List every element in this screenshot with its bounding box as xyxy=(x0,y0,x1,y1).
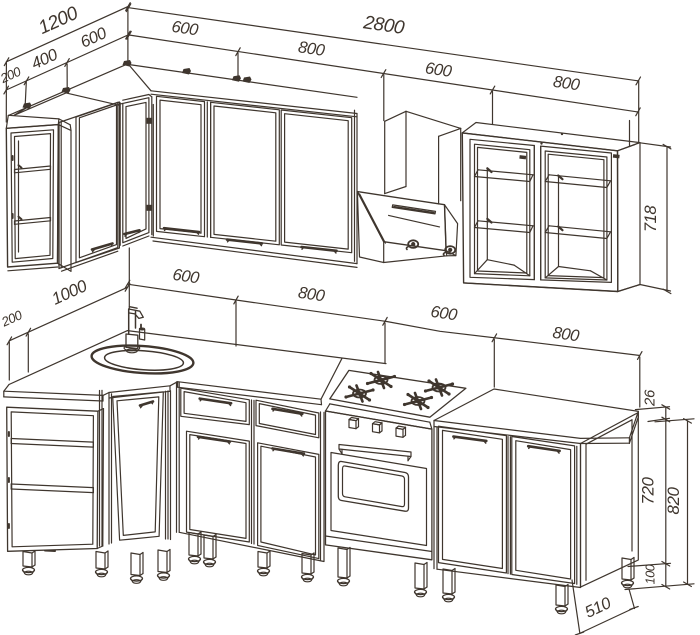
svg-text:200: 200 xyxy=(0,63,24,86)
svg-text:26: 26 xyxy=(642,389,659,407)
svg-text:718: 718 xyxy=(642,205,660,233)
svg-text:720: 720 xyxy=(639,476,658,504)
svg-text:2800: 2800 xyxy=(361,12,406,39)
svg-text:600: 600 xyxy=(429,303,459,325)
svg-text:1200: 1200 xyxy=(35,3,81,39)
svg-text:800: 800 xyxy=(297,38,327,60)
svg-text:200: 200 xyxy=(0,307,25,330)
svg-text:600: 600 xyxy=(78,24,111,52)
svg-text:600: 600 xyxy=(170,18,200,40)
svg-text:600: 600 xyxy=(171,266,201,288)
svg-text:600: 600 xyxy=(424,59,454,81)
svg-text:800: 800 xyxy=(551,324,581,346)
svg-text:1000: 1000 xyxy=(49,276,91,309)
svg-text:510: 510 xyxy=(582,594,615,622)
svg-text:100: 100 xyxy=(644,564,658,584)
svg-text:820: 820 xyxy=(664,486,683,514)
svg-text:800: 800 xyxy=(552,73,582,95)
svg-text:800: 800 xyxy=(297,284,327,306)
